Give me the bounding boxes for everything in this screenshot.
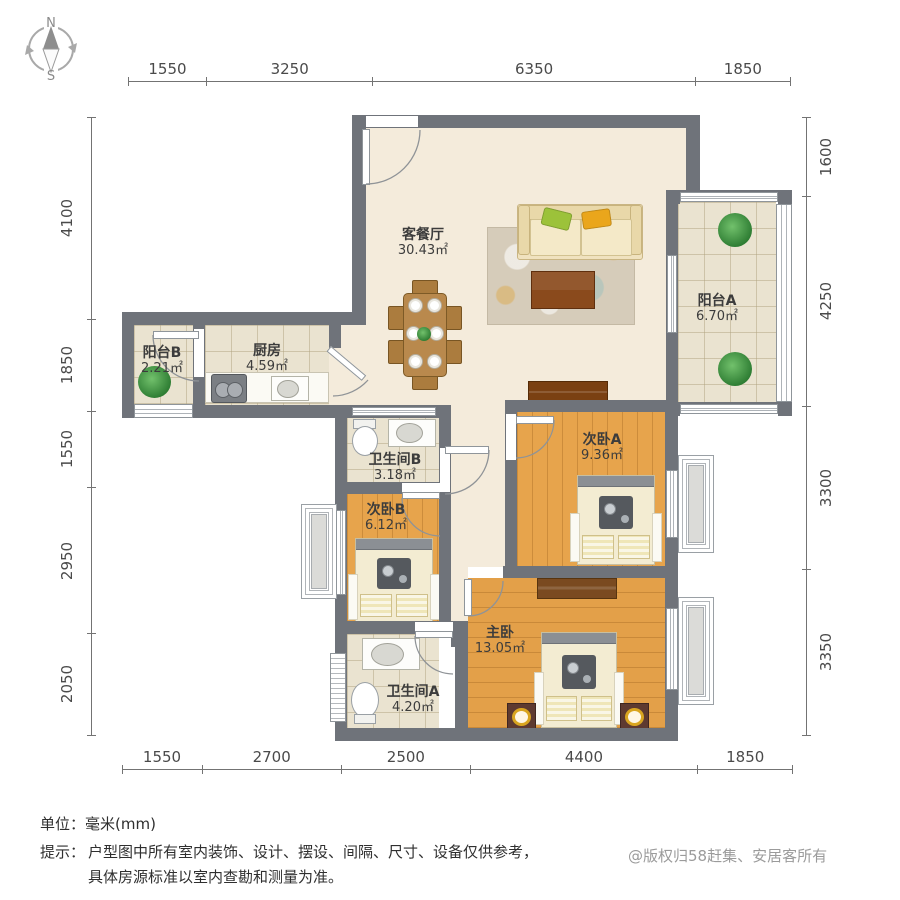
room-area: 4.20㎡	[387, 700, 440, 716]
nightstand-lamp-icon	[620, 703, 649, 731]
door-leaf	[415, 631, 453, 638]
window	[680, 192, 778, 202]
tip-text: 户型图中所有室内装饰、设计、摆设、间隔、尺寸、设备仅供参考， 具体房源标准以室内…	[88, 840, 648, 890]
bed-rail	[348, 574, 358, 620]
wall	[455, 634, 468, 741]
dimension-label: 3250	[207, 60, 373, 78]
wall-post	[122, 404, 134, 418]
room-area: 6.70㎡	[696, 309, 738, 325]
window	[134, 404, 193, 418]
coffee-table	[531, 271, 595, 309]
dimension-segment: 3350	[800, 569, 812, 735]
room-label-bedroom-b: 次卧B 6.12㎡	[365, 502, 407, 534]
wall	[122, 312, 134, 418]
bath-a-sink-icon	[362, 638, 420, 670]
dimension-segment: 2950	[85, 488, 97, 634]
dimension-label: 1850	[696, 60, 790, 78]
dimension-segment: 2700	[202, 748, 341, 774]
tip-label: 提示：	[40, 840, 85, 865]
bed-bedroom-a	[577, 475, 655, 565]
plate	[429, 326, 444, 341]
kitchen-sink-icon	[271, 376, 309, 401]
entry-door-opening	[366, 116, 418, 127]
wall	[122, 312, 366, 325]
room-name: 阳台A	[696, 293, 738, 309]
room-label-balcony-a: 阳台A 6.70㎡	[696, 293, 738, 325]
window	[776, 204, 792, 402]
compass-icon: N S	[18, 12, 84, 82]
room-label-bath-b: 卫生间B 3.18㎡	[369, 452, 422, 484]
bay-window	[678, 597, 714, 705]
plate	[408, 298, 423, 313]
dimension-label: 2050	[58, 662, 76, 706]
dimension-segment: 4250	[800, 196, 812, 406]
pillow	[618, 535, 650, 559]
entry-door-leaf	[362, 129, 370, 185]
bed-bedroom-b	[355, 538, 433, 623]
plate	[427, 354, 442, 369]
wall-post	[666, 190, 680, 204]
room-label-living: 客餐厅 30.43㎡	[398, 227, 448, 259]
plate	[408, 354, 423, 369]
door-opening	[506, 414, 516, 460]
dimension-label: 3350	[817, 630, 835, 674]
dimension-segment: 4400	[470, 748, 697, 774]
wall	[505, 400, 678, 412]
room-name: 客餐厅	[398, 227, 448, 243]
wall	[503, 566, 678, 578]
sofa-armrest	[518, 205, 530, 255]
door-leaf	[153, 331, 199, 339]
room-label-kitchen: 厨房 4.59㎡	[246, 343, 288, 375]
dimension-line-left: 41001850155029502050	[85, 117, 97, 735]
copyright-text: @版权归58赶集、安居客所有	[628, 845, 827, 866]
pillow	[581, 696, 613, 722]
dimension-segment: 3300	[800, 406, 812, 569]
dimension-label: 1550	[122, 748, 202, 766]
dimension-segment: 1850	[696, 60, 790, 86]
dining-chair	[445, 306, 462, 330]
floor-plan-page: N S 1550325063501850 1550270025004400185…	[0, 0, 900, 900]
dimension-label: 4400	[470, 748, 697, 766]
door-leaf	[516, 416, 554, 424]
tip-line-1: 户型图中所有室内装饰、设计、摆设、间隔、尺寸、设备仅供参考，	[88, 840, 648, 865]
room-label-bath-a: 卫生间A 4.20㎡	[387, 684, 440, 716]
room-area: 13.05㎡	[475, 641, 525, 657]
wall-post	[778, 190, 792, 204]
room-name: 卫生间A	[387, 684, 440, 700]
dimension-line-bottom: 15502700250044001850	[122, 748, 793, 774]
room-area: 6.12㎡	[365, 518, 407, 534]
dimension-label: 1850	[58, 343, 76, 387]
room-area: 30.43㎡	[398, 243, 448, 259]
bay-window	[678, 455, 714, 553]
door-opening	[468, 567, 503, 578]
sofa	[517, 204, 643, 260]
wall	[335, 728, 678, 741]
room-area: 9.36㎡	[581, 448, 623, 464]
door-leaf	[402, 492, 440, 499]
bed-rail	[652, 513, 662, 562]
dimension-label: 2950	[58, 539, 76, 583]
dimension-segment: 1550	[128, 60, 207, 86]
dimension-label: 2500	[341, 748, 470, 766]
unit-note: 单位：毫米(mm)	[40, 812, 156, 837]
unit-value: 毫米(mm)	[85, 815, 156, 833]
wall-post	[193, 404, 205, 418]
dimension-line-top: 1550325063501850	[128, 60, 790, 86]
room-name: 厨房	[246, 343, 288, 359]
plate	[427, 298, 442, 313]
dimension-label: 6350	[372, 60, 695, 78]
compass-south-label: S	[47, 69, 55, 82]
wall	[439, 482, 451, 634]
dimension-segment: 4100	[85, 117, 97, 320]
dimension-segment: 3250	[207, 60, 373, 86]
room-name: 主卧	[475, 625, 525, 641]
sofa-back	[522, 205, 638, 220]
dining-chair	[445, 340, 462, 364]
compass-north-label: N	[46, 16, 56, 31]
room-area: 4.59㎡	[246, 359, 288, 375]
toilet-icon	[351, 682, 379, 718]
balcony-plant-icon	[718, 352, 752, 386]
dimension-segment: 1550	[85, 411, 97, 488]
dimension-label: 4100	[58, 196, 76, 240]
bay-window	[301, 504, 337, 599]
door-leaf	[464, 579, 472, 616]
window	[352, 407, 436, 416]
dimension-segment: 1550	[122, 748, 202, 774]
pillow	[360, 594, 392, 617]
dimension-label: 1550	[128, 60, 207, 78]
balcony-slider-window	[667, 255, 677, 333]
room-name: 阳台B	[141, 345, 183, 361]
bed-headboard	[578, 476, 654, 487]
toilet-icon	[354, 714, 376, 724]
tip-line-2: 具体房源标准以室内查勘和测量为准。	[88, 865, 648, 890]
dimension-line-right: 1600425033003350	[800, 117, 812, 735]
living-floor	[341, 325, 666, 405]
dimension-segment: 2500	[341, 748, 470, 774]
window	[680, 404, 778, 414]
pillow	[546, 696, 578, 722]
pillow	[396, 594, 428, 617]
bed-rail	[570, 513, 580, 562]
room-name: 卫生间B	[369, 452, 422, 468]
dimension-segment: 1600	[800, 117, 812, 196]
room-area: 3.18㎡	[369, 468, 422, 484]
dimension-label: 1550	[58, 427, 76, 471]
window	[666, 608, 678, 690]
dimension-segment: 1850	[698, 748, 793, 774]
window	[336, 510, 346, 595]
room-area: 2.21㎡	[141, 361, 183, 377]
dimension-label: 1600	[817, 135, 835, 179]
table-plant-icon	[417, 327, 431, 341]
wall	[329, 325, 341, 348]
bed-master	[541, 632, 617, 728]
door-leaf	[445, 446, 489, 454]
living-floor	[366, 128, 686, 200]
balcony-plant-icon	[718, 213, 752, 247]
dimension-label: 3300	[817, 466, 835, 510]
dimension-label: 4250	[817, 279, 835, 323]
unit-label: 单位：	[40, 815, 85, 833]
room-label-balcony-b: 阳台B 2.21㎡	[141, 345, 183, 377]
bed-quilt	[562, 655, 596, 690]
wall-post	[778, 402, 792, 416]
stove-icon	[211, 374, 247, 403]
room-name: 次卧B	[365, 502, 407, 518]
dimension-label: 2700	[202, 748, 341, 766]
bed-quilt	[599, 496, 634, 529]
wall	[686, 115, 700, 192]
dimension-segment: 2050	[85, 634, 97, 735]
master-dresser	[537, 578, 617, 599]
dimension-segment: 1850	[85, 320, 97, 411]
pillow	[582, 535, 614, 559]
room-name: 次卧A	[581, 432, 623, 448]
louver-window	[330, 653, 346, 722]
dimension-label: 1850	[698, 748, 793, 766]
hallway-floor	[451, 405, 505, 580]
bed-headboard	[542, 633, 616, 644]
room-label-bedroom-a: 次卧A 9.36㎡	[581, 432, 623, 464]
nightstand-lamp-icon	[507, 703, 536, 731]
bath-b-sink-icon	[388, 419, 436, 447]
bed-quilt	[377, 558, 412, 589]
bed-headboard	[356, 539, 432, 550]
wall-post	[666, 402, 680, 416]
window	[666, 470, 678, 538]
door-opening	[440, 448, 450, 492]
room-label-master: 主卧 13.05㎡	[475, 625, 525, 657]
dimension-segment: 6350	[372, 60, 695, 86]
